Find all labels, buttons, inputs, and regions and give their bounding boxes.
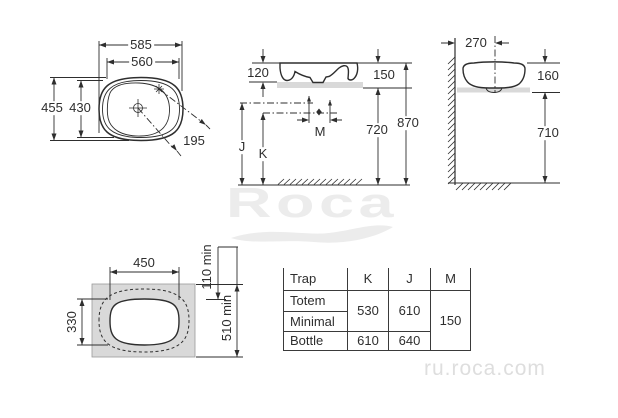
table-header-trap: Trap (284, 268, 348, 290)
dim-side-wall-to-center: 270 (463, 36, 489, 50)
dim-cutout-depth: 330 (65, 309, 79, 335)
table-cell-m-all: 150 (431, 290, 471, 350)
dim-front-j-label: J (237, 140, 248, 154)
dim-plan-overall-width: 585 (128, 38, 154, 52)
dim-front-k-label: K (257, 147, 270, 161)
dim-cutout-min-depth: 510 min (220, 293, 234, 343)
trap-dimension-table: Trap K J M Totem 530 610 150 Minimal Bot… (283, 268, 471, 351)
dim-plan-drain-to-tap: 195 (181, 134, 207, 148)
table-header-j: J (389, 268, 431, 290)
table-row-minimal: Minimal (284, 311, 348, 331)
dim-front-rim-to-counter: 150 (371, 68, 397, 82)
side-view (441, 36, 560, 190)
basin-front-profile (280, 63, 358, 83)
table-cell-k-bottle: 610 (348, 331, 389, 350)
center-diamond (316, 109, 322, 116)
dim-cutout-back-clearance: 110 min (200, 242, 214, 291)
table-cell-k-totem-minimal: 530 (348, 290, 389, 331)
table-cell-j-bottle: 640 (389, 331, 431, 350)
floor-hatch-side (456, 183, 511, 190)
dim-front-rim-to-floor: 870 (395, 116, 421, 130)
side-dimensions (441, 36, 560, 190)
table-row-bottle: Bottle (284, 331, 348, 350)
table-row-totem: Totem (284, 290, 348, 311)
dim-cutout-width: 450 (131, 256, 157, 270)
dim-plan-inner-width: 560 (129, 55, 155, 69)
floor-hatch (278, 179, 362, 185)
wall-hatch (448, 57, 455, 184)
table-cell-j-totem-minimal: 610 (389, 290, 431, 331)
dim-plan-inner-depth: 430 (67, 101, 93, 115)
dim-front-m-label: M (313, 125, 328, 139)
basin-side-profile (463, 62, 525, 88)
dim-front-counter-to-floor: 720 (364, 123, 390, 137)
dim-front-basin-above-counter: 120 (245, 66, 271, 80)
table-header-m: M (431, 268, 471, 290)
table-header-k: K (348, 268, 389, 290)
dimension-drawing (0, 0, 618, 418)
technical-drawing-page: Roca ru.roca.com (0, 0, 618, 418)
cutout-opening (110, 299, 179, 345)
dim-plan-overall-depth: 455 (39, 101, 65, 115)
cutout-view (77, 247, 243, 357)
dim-side-basin-height: 160 (535, 69, 561, 83)
dim-side-counter-to-floor: 710 (535, 126, 561, 140)
